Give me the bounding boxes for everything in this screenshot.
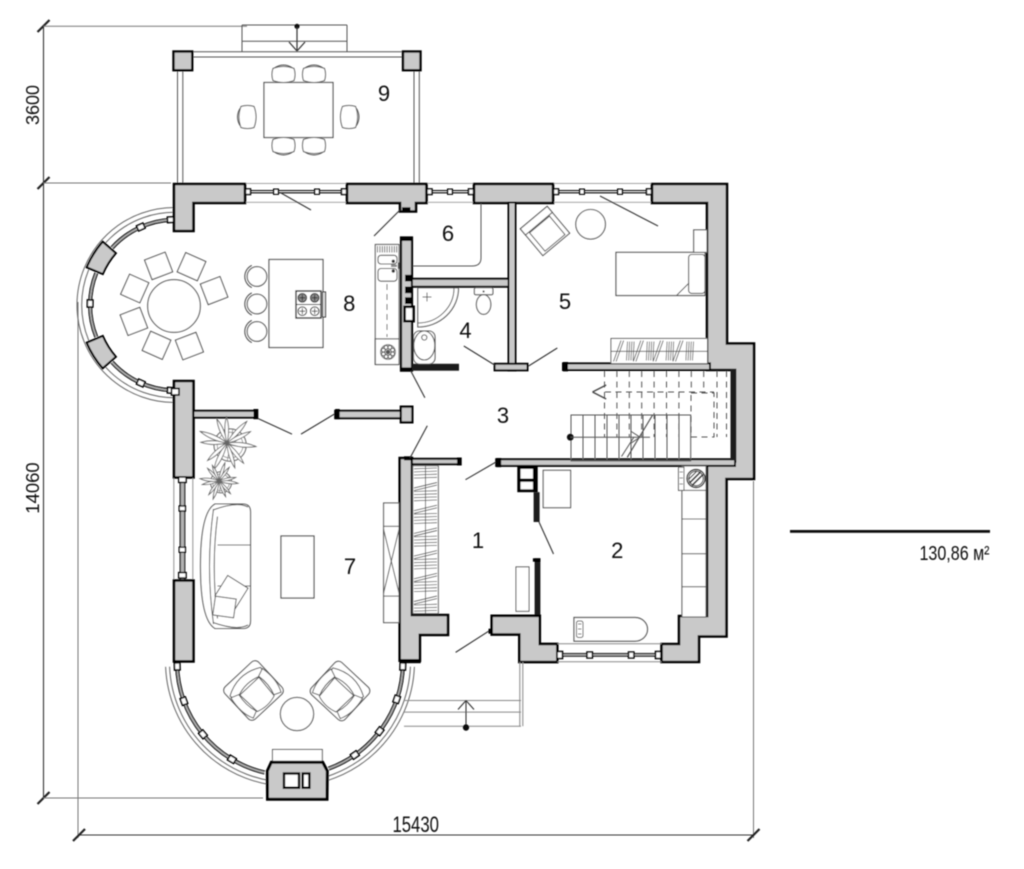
svg-text:9: 9 [378,81,390,106]
svg-text:1: 1 [472,528,484,553]
svg-text:5: 5 [559,289,571,314]
svg-text:3: 3 [497,403,509,428]
svg-text:14060: 14060 [22,462,43,513]
svg-text:4: 4 [459,318,471,343]
svg-text:7: 7 [344,554,356,579]
svg-text:15430: 15430 [392,812,439,837]
svg-text:2: 2 [611,538,623,563]
svg-text:130,86 м²: 130,86 м² [920,542,990,565]
svg-text:6: 6 [442,221,454,246]
svg-text:8: 8 [343,291,355,316]
svg-text:3600: 3600 [23,85,43,125]
